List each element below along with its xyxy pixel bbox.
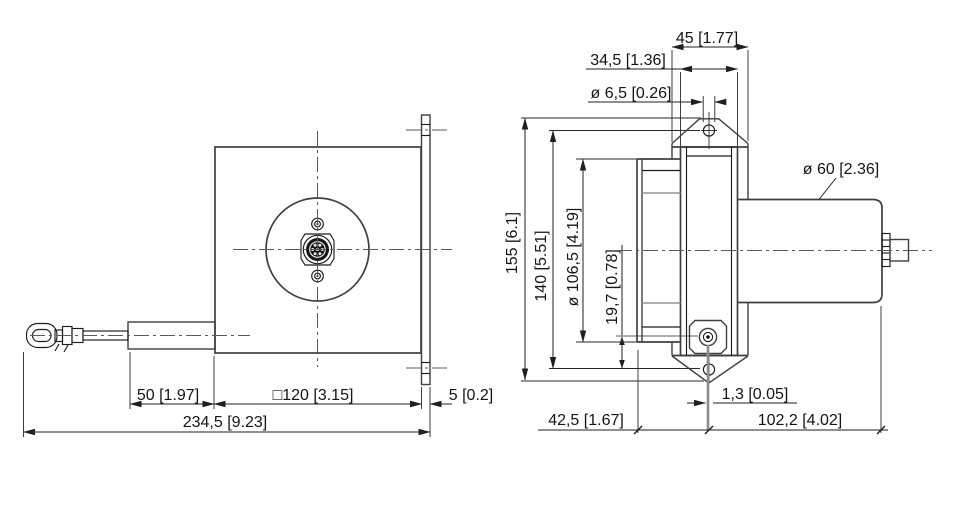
dim-drum-diameter: ø 106,5 [4.19] [565, 159, 583, 342]
dim-label-234-5: 234,5 [9.23] [183, 414, 268, 431]
drawing-canvas: 50 [1.97] □120 [3.15] 5 [0.2] 234,5 [9.2… [0, 0, 953, 511]
dim-plate-thickness: 5 [0.2] [399, 387, 493, 404]
dim-label-42-5: 42,5 [1.67] [548, 412, 624, 429]
dim-label-45: 45 [1.77] [676, 30, 738, 47]
dim-label-34-5: 34,5 [1.36] [590, 52, 666, 69]
dim-mount-hole-diameter: ø 6,5 [0.26] [588, 85, 726, 122]
dim-label-155: 155 [6.1] [504, 212, 521, 274]
dim-cable-clip-to-housing: 50 [1.97] [130, 387, 214, 404]
dim-cable-lateral-offset: 1,3 [0.05] [687, 386, 797, 403]
dim-label-1-3: 1,3 [0.05] [722, 386, 789, 403]
side-view: 155 [6.1] 140 [5.51] ø 106,5 [4.19] 19,7… [504, 30, 932, 434]
dim-label-5: 5 [0.2] [449, 387, 493, 404]
dim-label-140: 140 [5.51] [533, 230, 550, 301]
wire-rope-assembly [27, 322, 251, 352]
dim-overall-length: 234,5 [9.23] [24, 414, 431, 432]
dim-label-60: ø 60 [2.36] [803, 161, 880, 178]
dim-label-106-5: ø 106,5 [4.19] [565, 208, 582, 307]
technical-drawing-page: 50 [1.97] □120 [3.15] 5 [0.2] 234,5 [9.2… [0, 0, 953, 511]
dim-plate-height: 155 [6.1] [504, 118, 525, 380]
dim-cable-exit-offset: 19,7 [0.78] [604, 245, 625, 369]
dim-chain-bottom: 42,5 [1.67] 102,2 [4.02] [538, 412, 888, 434]
dim-label-120: □120 [3.15] [273, 387, 354, 404]
dim-hole-spacing: 140 [5.51] [533, 131, 553, 369]
dim-cylinder-diameter: ø 60 [2.36] [803, 161, 880, 200]
front-view: 50 [1.97] □120 [3.15] 5 [0.2] 234,5 [9.2… [24, 115, 494, 437]
dim-label-6-5: ø 6,5 [0.26] [591, 85, 672, 102]
housing-body-side [681, 147, 738, 356]
dim-label-19-7: 19,7 [0.78] [604, 249, 621, 325]
dim-body-depth: 34,5 [1.36] [586, 52, 738, 69]
mounting-bracket [672, 112, 748, 383]
dim-label-50: 50 [1.97] [137, 387, 199, 404]
dim-plate-width: 45 [1.77] [672, 30, 748, 47]
dim-housing-square: □120 [3.15] [214, 387, 422, 404]
dim-label-102-2: 102,2 [4.02] [758, 412, 843, 429]
